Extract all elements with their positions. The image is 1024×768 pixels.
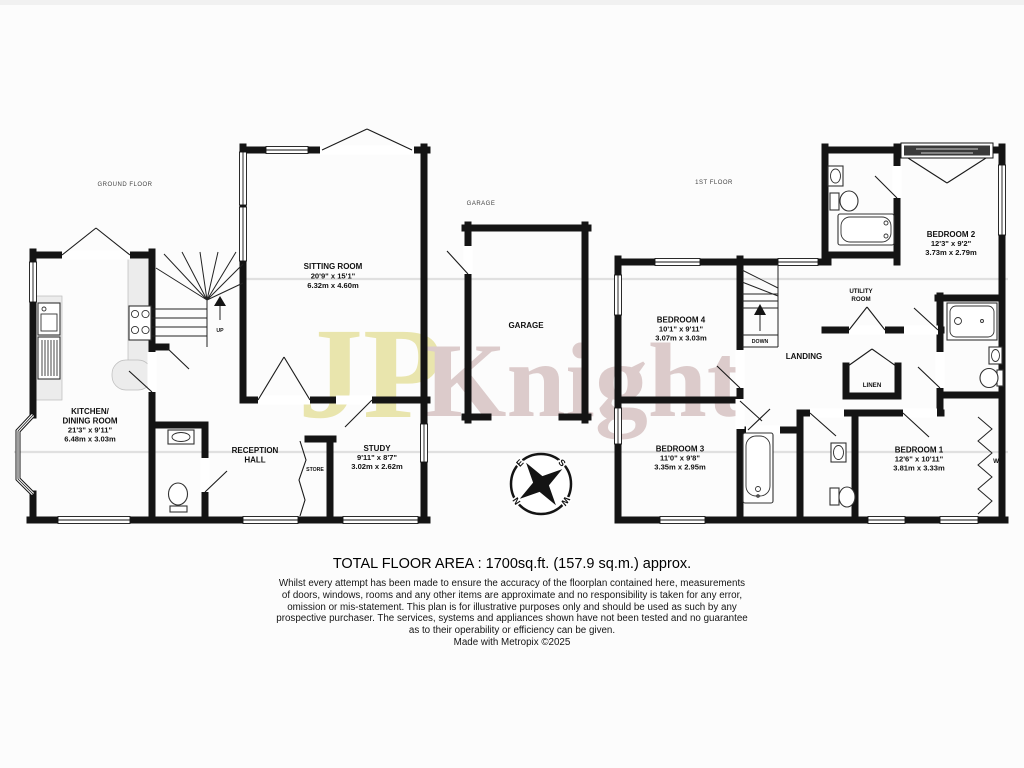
bedroom4-imperial: 10'1" x 9'11": [659, 325, 704, 334]
disclaimer-line: prospective purchaser. The services, sys…: [0, 613, 1024, 625]
metropix-credit: Made with Metropix ©2025: [0, 637, 1024, 649]
cloakroom-fixtures: [168, 430, 194, 512]
ground-staircase: UP: [152, 252, 243, 347]
bedroom2-balcony-bar: [901, 143, 993, 158]
bathroom-fixtures: [828, 166, 894, 245]
utility-name-2: ROOM: [851, 296, 870, 303]
footer: TOTAL FLOOR AREA : 1700sq.ft. (157.9 sq.…: [0, 556, 1024, 649]
bedroom3-name: BEDROOM 3: [656, 445, 705, 454]
sitting-room-left-window-1: [240, 152, 247, 205]
bedroom3-metric: 3.35m x 2.95m: [654, 463, 706, 472]
study-metric: 3.02m x 2.62m: [351, 462, 403, 471]
disclaimer-line: of doors, windows, rooms and any other i…: [0, 590, 1024, 602]
wardrobe-doors: [978, 417, 992, 514]
bedroom4-left-window: [615, 275, 622, 315]
kitchen-metric: 6.48m x 3.03m: [64, 435, 116, 444]
compass: E S N W: [511, 454, 572, 514]
disclaimer: Whilst every attempt has been made to en…: [0, 578, 1024, 649]
first-floor-label: 1ST FLOOR: [695, 180, 733, 186]
bedroom4-metric: 3.07m x 3.03m: [655, 334, 707, 343]
reception-name-1: RECEPTION: [232, 446, 279, 455]
sitting-room-left-window-2: [240, 207, 247, 261]
bedroom2-right-window: [999, 165, 1006, 235]
garage-name: GARAGE: [508, 321, 544, 330]
first-floor: 1ST FLOOR: [615, 143, 1006, 524]
bedroom1-bottom-window-2: [940, 517, 978, 524]
bedroom3-bottom-window: [660, 517, 705, 524]
bedroom1-name: BEDROOM 1: [895, 446, 944, 455]
bedroom4-top-window: [655, 259, 700, 266]
bedroom2-metric: 3.73m x 2.79m: [925, 248, 977, 257]
reception-bottom-window: [243, 517, 298, 524]
sitting-room-name: SITTING ROOM: [304, 262, 363, 271]
disclaimer-line: as to their operability or efficiency ca…: [0, 625, 1024, 637]
garage-header-label: GARAGE: [467, 201, 496, 207]
landing-label: LANDING: [786, 352, 822, 361]
landing-top-window: [778, 259, 818, 266]
total-floor-area: TOTAL FLOOR AREA : 1700sq.ft. (157.9 sq.…: [0, 556, 1024, 572]
floorplan-drawing: JP Knight GROUND FLOOR: [0, 0, 1024, 768]
kitchen-name-2: DINING ROOM: [62, 417, 117, 426]
disclaimer-line: omission or mis-statement. This plan is …: [0, 602, 1024, 614]
ground-floor-label: GROUND FLOOR: [97, 182, 152, 188]
bay-window: [18, 415, 33, 494]
sitting-room-metric: 6.32m x 4.60m: [307, 281, 359, 290]
stairs-down-label: DOWN: [752, 339, 769, 345]
kitchen-bottom-window: [58, 517, 130, 524]
disclaimer-line: Whilst every attempt has been made to en…: [0, 578, 1024, 590]
store-label: STORE: [306, 467, 324, 473]
bedroom1-metric: 3.81m x 3.33m: [893, 464, 945, 473]
study-bottom-window: [343, 517, 418, 524]
linen-label: LINEN: [863, 382, 882, 389]
study-name: STUDY: [363, 444, 391, 453]
first-floor-staircase: DOWN: [742, 264, 778, 347]
kitchen-name-1: KITCHEN/: [71, 407, 110, 416]
study-right-window: [421, 424, 428, 462]
bedroom4-name: BEDROOM 4: [657, 316, 706, 325]
utility-name-1: UTILITY: [849, 288, 873, 295]
bedroom1-bottom-window-1: [868, 517, 905, 524]
kitchen-imperial: 21'3" x 9'11": [68, 426, 113, 435]
bedroom3-imperial: 11'0" x 9'8": [660, 454, 700, 463]
sitting-room-imperial: 20'9" x 15'1": [311, 272, 356, 281]
stairs-up-label: UP: [216, 328, 224, 334]
bedroom1-imperial: 12'6" x 10'11": [895, 455, 944, 464]
bedroom3-left-window: [615, 408, 622, 444]
study-imperial: 9'11" x 8'7": [357, 453, 397, 462]
shower-room-fixtures: [947, 303, 1003, 388]
bedroom2-name: BEDROOM 2: [927, 230, 976, 239]
sitting-room-top-window: [266, 147, 308, 154]
wardrobe-label: W: [993, 458, 999, 465]
floorplan-page: JP Knight GROUND FLOOR: [0, 0, 1024, 768]
kitchen-left-window: [30, 262, 37, 302]
bedroom2-imperial: 12'3" x 9'2": [931, 239, 972, 248]
reception-name-2: HALL: [244, 456, 265, 465]
